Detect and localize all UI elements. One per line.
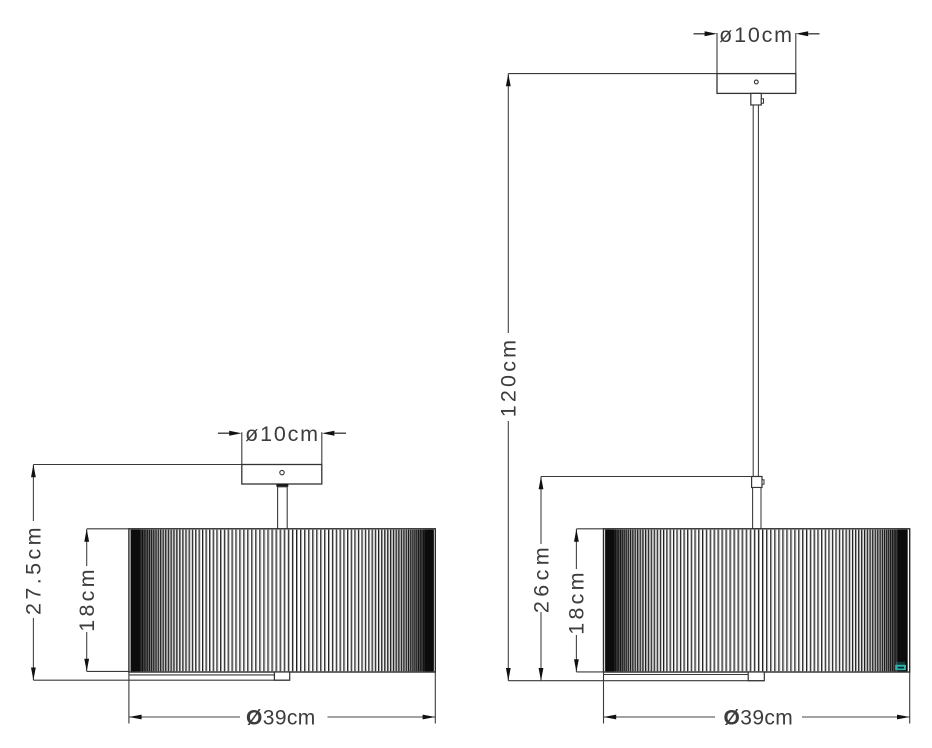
svg-text:27.5cm: 27.5cm <box>22 524 46 615</box>
svg-text:ø10cm: ø10cm <box>245 422 320 446</box>
svg-text:ø10cm: ø10cm <box>719 23 794 47</box>
svg-text:Ø39cm: Ø39cm <box>246 707 316 730</box>
svg-text:18cm: 18cm <box>75 566 99 631</box>
svg-text:120cm: 120cm <box>497 337 521 418</box>
svg-text:Ø39cm: Ø39cm <box>724 707 794 730</box>
svg-text:26cm: 26cm <box>530 543 554 613</box>
svg-text:18cm: 18cm <box>565 569 589 634</box>
